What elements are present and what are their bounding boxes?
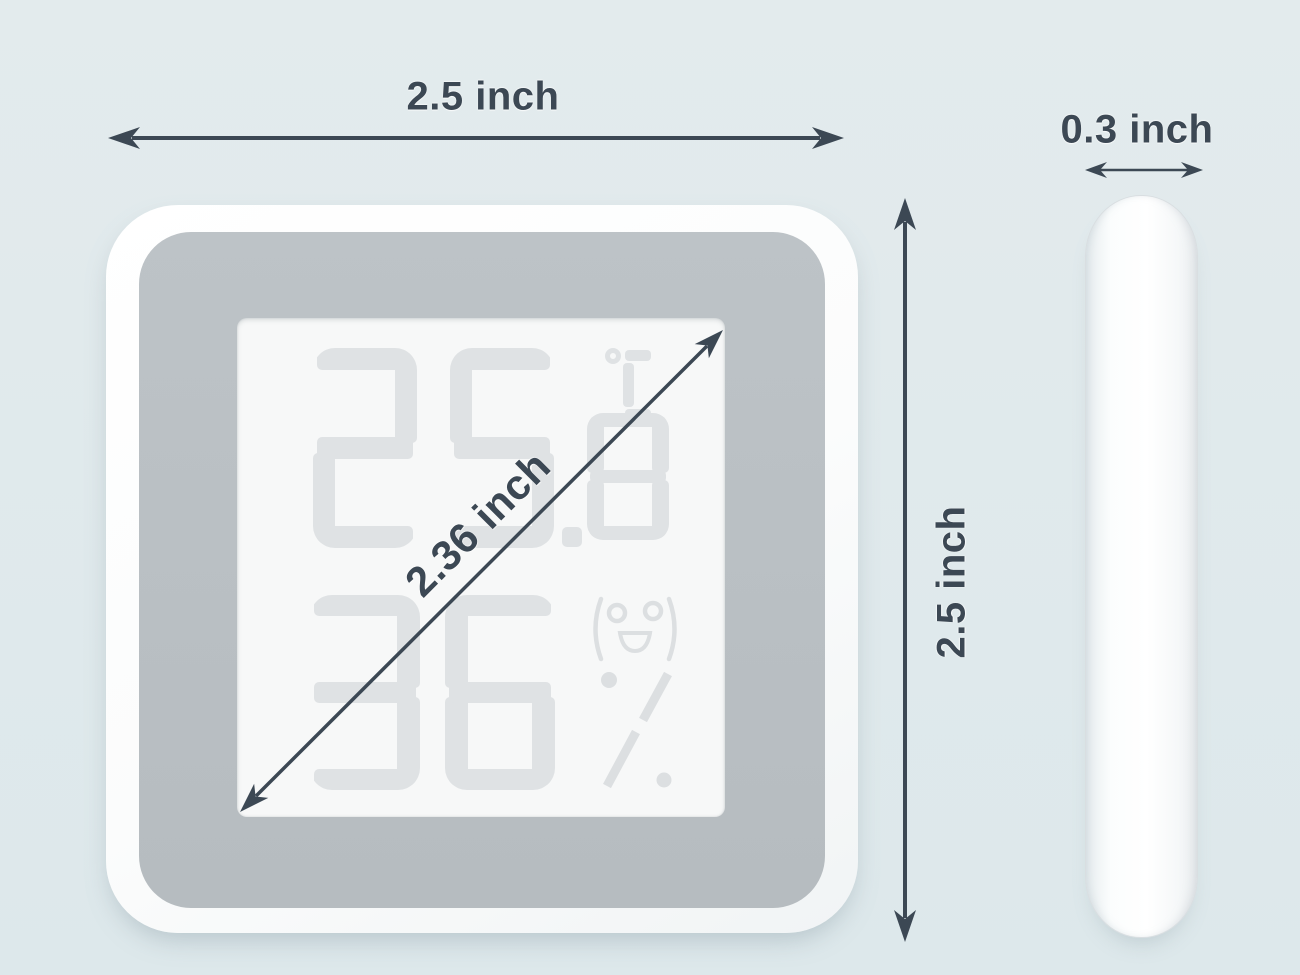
diagonal-dimension-arrow [228, 318, 738, 823]
thickness-dimension-arrow [1082, 157, 1206, 183]
width-dimension-arrow [104, 118, 848, 158]
product-dimension-diagram: 2.5 inch 0.3 inch [0, 0, 1300, 975]
width-dimension-label: 2.5 inch [407, 75, 560, 120]
height-dimension-arrow [885, 190, 925, 950]
height-dimension-label: 2.5 inch [930, 506, 975, 659]
device-side-view [1085, 195, 1198, 938]
thickness-dimension-label: 0.3 inch [1061, 108, 1214, 153]
